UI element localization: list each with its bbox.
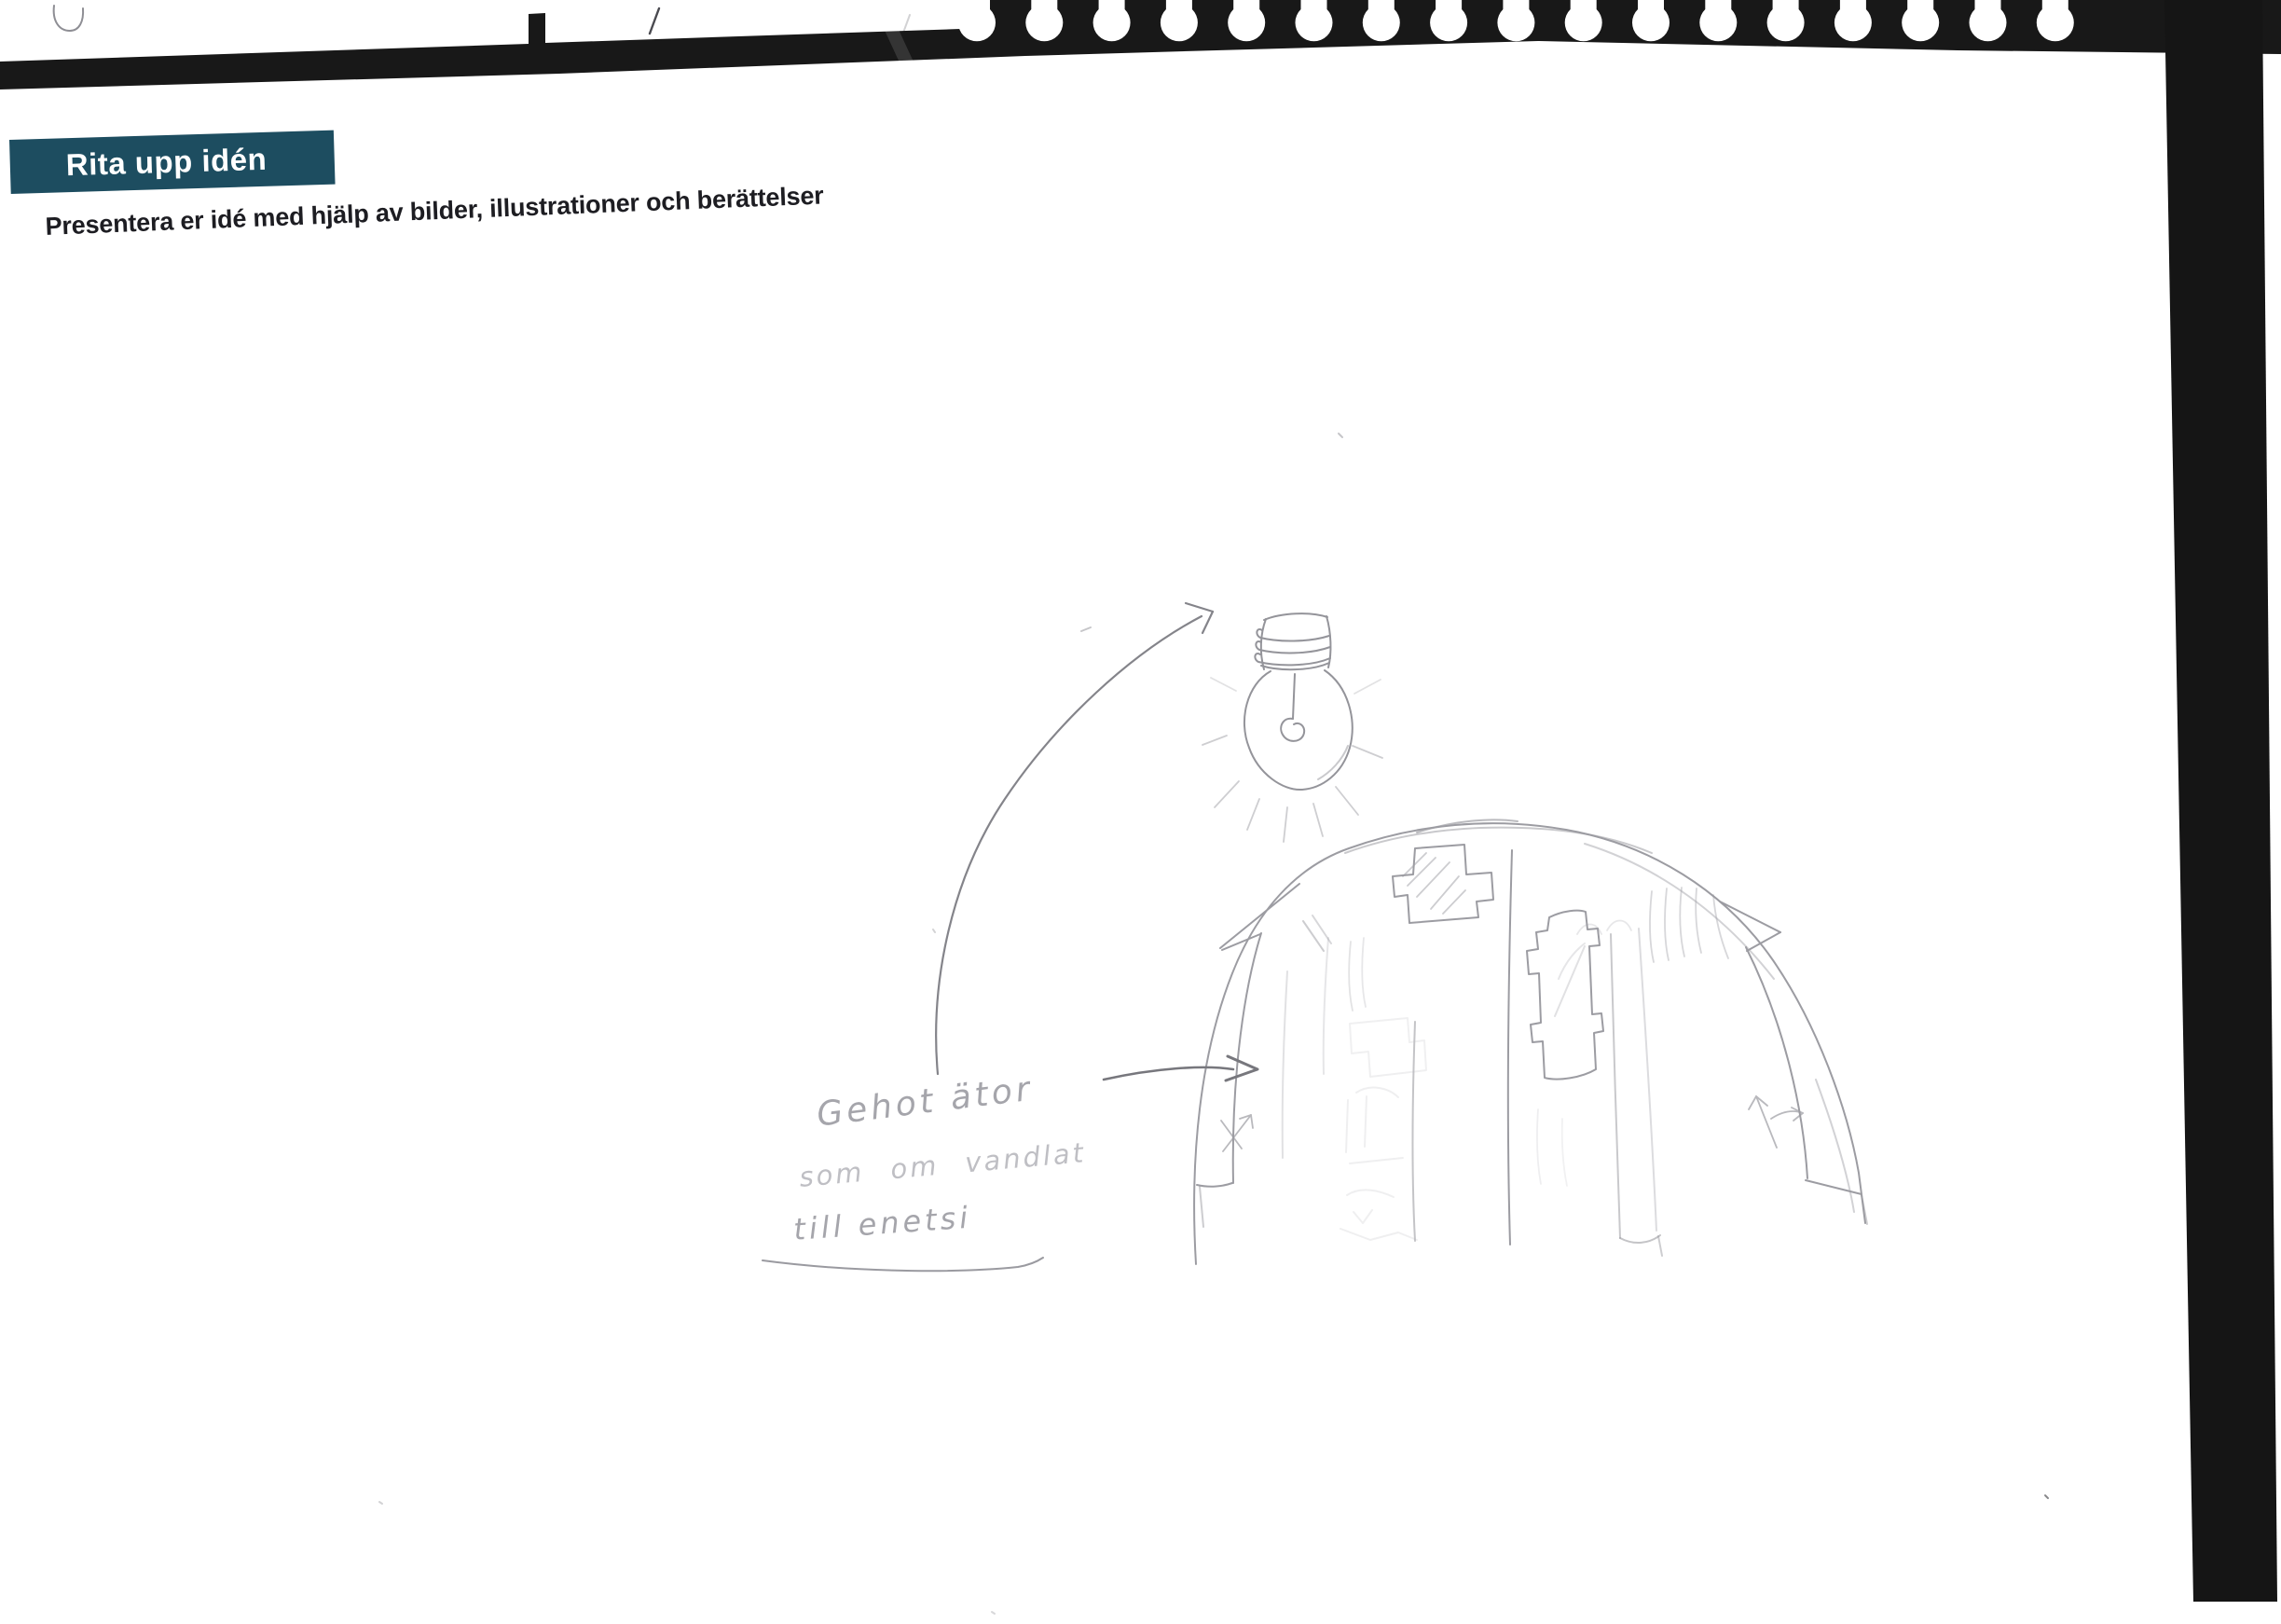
binding-hole xyxy=(1161,0,1198,41)
binding-hole xyxy=(958,0,996,41)
worksheet-title: Rita upp idén xyxy=(65,142,268,183)
binding-hole xyxy=(1025,0,1063,41)
binding-hole xyxy=(1430,0,1467,41)
scan-artifacts xyxy=(0,0,2281,1624)
binding-hole xyxy=(1363,0,1400,41)
right-scan-bar xyxy=(2164,0,2277,1602)
worksheet-title-box: Rita upp idén xyxy=(9,131,336,194)
binding-hole xyxy=(1296,0,1333,41)
top-scan-band xyxy=(0,0,2281,89)
scanned-worksheet-page: Rita upp idén Presentera er idé med hjäl… xyxy=(0,0,2281,1624)
binding-hole xyxy=(1228,0,1265,41)
binding-hole xyxy=(1632,0,1670,41)
